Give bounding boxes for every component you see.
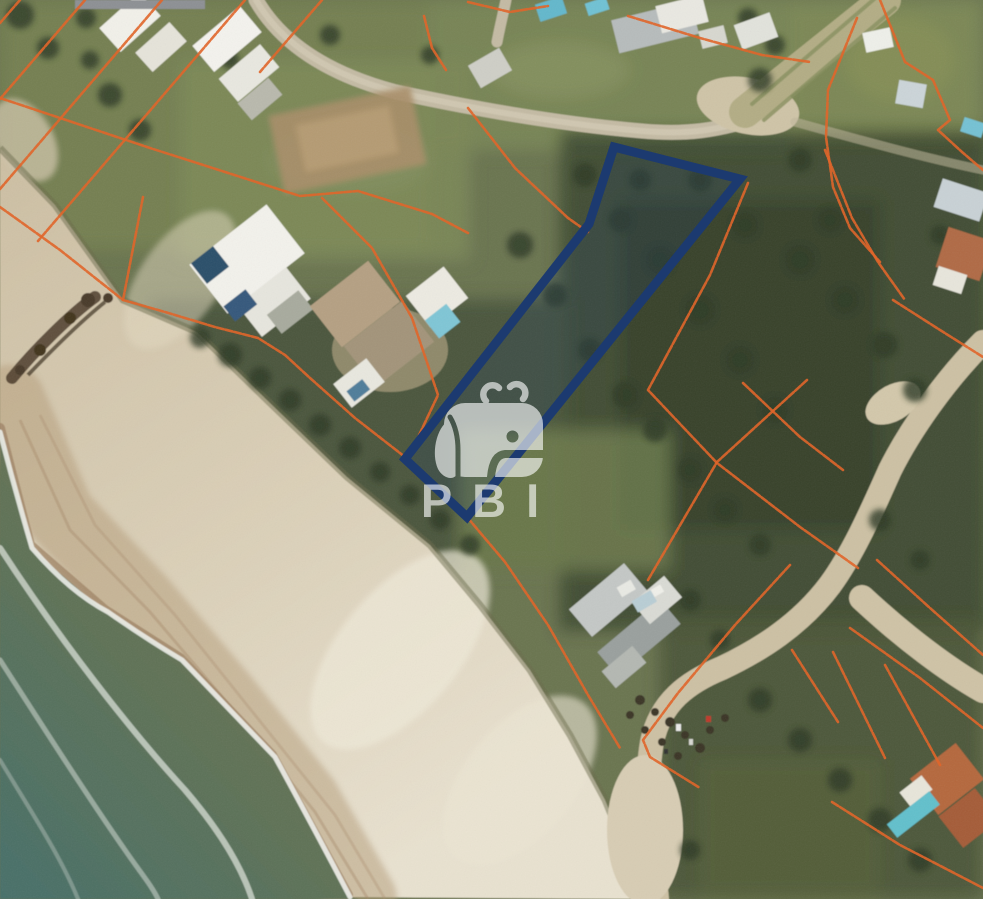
watermark: PBI xyxy=(421,365,559,527)
brand-text: PBI xyxy=(421,474,559,527)
satellite-listing-image: PBI xyxy=(0,0,983,899)
whale-icon xyxy=(425,365,555,485)
